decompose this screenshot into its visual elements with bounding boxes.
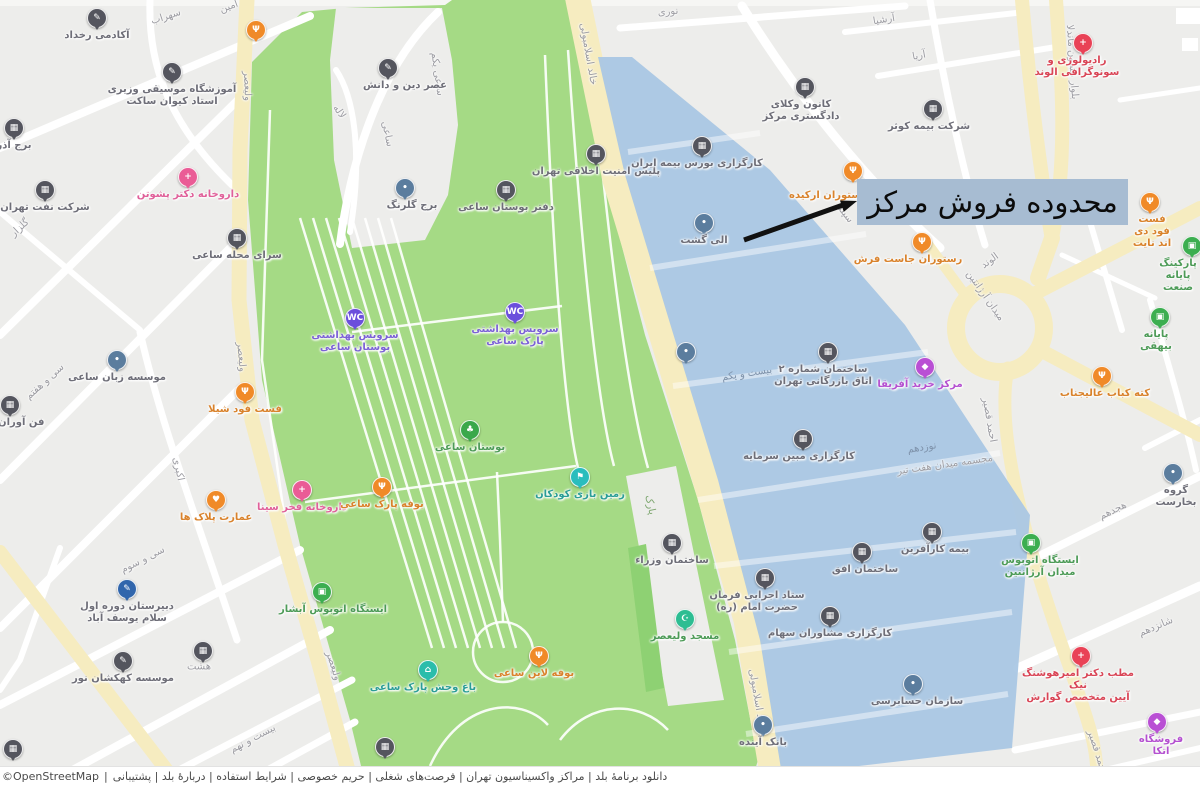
building-icon: ▦ (929, 105, 938, 114)
building-icon: ▦ (824, 348, 833, 357)
bus-icon: ▣ (318, 588, 327, 597)
map-pin-just-restaurant[interactable]: Ψ (912, 232, 932, 252)
building-icon: ▦ (502, 186, 511, 195)
street-label: نوری (657, 6, 678, 19)
poi-label-fakhre-sina-pharmacy: داروخانه فخر سینا (257, 502, 347, 514)
medical-icon: + (1077, 652, 1085, 661)
heart-icon: ♥ (212, 496, 220, 505)
poi-label-salam-school: دبیرستان دوره اول سلام یوسف آباد (80, 601, 174, 625)
generic-icon: • (910, 680, 916, 689)
map-pin-azar-tower[interactable]: ▦ (4, 118, 24, 138)
bus-icon: ▣ (1156, 313, 1165, 322)
map-pin-salam-school[interactable]: ✎ (117, 579, 137, 599)
map-pin-bucharest-group[interactable]: • (1163, 463, 1183, 483)
building-icon: ▦ (9, 745, 18, 754)
school-icon: ✎ (168, 68, 176, 77)
poi-label-saee-park-office: دفتر بوستان ساعی (458, 202, 554, 214)
map-pin-saee-language-institute[interactable]: • (107, 350, 127, 370)
generic-icon: • (1170, 469, 1176, 478)
bus-icon: ▣ (1027, 539, 1036, 548)
map-pin-park-buffet[interactable]: Ψ (372, 477, 392, 497)
map-pin-fakhre-sina-pharmacy[interactable]: + (292, 480, 312, 500)
poi-label-africa-mall: مرکز خرید آفریقا (877, 379, 962, 391)
poi-label-fanavaran: فن آوران مهر (0, 417, 44, 429)
map-pin-doctor-office[interactable]: + (1071, 646, 1091, 666)
poi-label-chamber-of-commerce: ساختمان شماره ۲ اتاق بازرگانی تهران (774, 364, 872, 388)
map-pin-beyhaghi-terminal[interactable]: ▣ (1150, 307, 1170, 327)
street-label: آریا (911, 49, 926, 62)
building-icon: ▦ (801, 83, 810, 92)
poi-label-oil-company: شرکت نفت تهران (0, 202, 90, 214)
food-icon: Ψ (241, 388, 249, 397)
map-pin-pashootan-pharmacy[interactable]: + (178, 167, 198, 187)
poi-label-shila-fastfood: فست فود شیلا (208, 404, 282, 416)
poi-label-just-restaurant: رستوران جاست فرش (854, 254, 963, 266)
generic-icon: • (114, 356, 120, 365)
map-pin-bar-association[interactable]: ▦ (795, 77, 815, 97)
building-icon: ▦ (381, 743, 390, 752)
generic-icon: • (683, 348, 689, 357)
generic-icon: • (402, 184, 408, 193)
poi-label-doctor-office: مطب دکتر امیرهوشنگ نیک آیین متخصص گوارش (1017, 668, 1139, 704)
food-icon: Ψ (918, 238, 926, 247)
footer-links[interactable]: دانلود برنامهٔ بلد | مراکز واکسیناسیون ت… (113, 770, 668, 783)
poi-label-alvand-radiology: رادیولوژی و سونوگرافی الوند (1035, 55, 1120, 79)
map-pin-shila-fastfood[interactable]: Ψ (235, 382, 255, 402)
building-icon: ▦ (826, 612, 835, 621)
map-pin-alijanab-kabab[interactable]: Ψ (1092, 366, 1112, 386)
food-icon: Ψ (1098, 372, 1106, 381)
building-icon: ▦ (761, 574, 770, 583)
map-pin-building-pin-corner[interactable]: ▦ (3, 739, 23, 759)
map-pin-ayandeh-bank[interactable]: • (753, 715, 773, 735)
map-pin-saee-park-office[interactable]: ▦ (496, 180, 516, 200)
poi-label-bucharest-group: گروه بخارست (1156, 485, 1197, 509)
map-pin-alvand-radiology[interactable]: + (1073, 33, 1093, 53)
street-label: ولیعصر (241, 71, 253, 101)
building-icon: ▦ (799, 435, 808, 444)
poi-label-etka-store: فروشگاه اتکا (1139, 734, 1183, 758)
poi-label-insurance-brokerage: کارگزاری بورس بیمه ایران (631, 158, 763, 170)
map-pin-saee-neighborhood-house[interactable]: ▦ (227, 228, 247, 248)
map-pin-etka-store[interactable]: ◆ (1147, 712, 1167, 732)
map-pin-mobin-brokerage[interactable]: ▦ (793, 429, 813, 449)
map-pin-eligasht[interactable]: • (694, 213, 714, 233)
map-pin-abshar-bus-stop[interactable]: ▣ (312, 582, 332, 602)
school-icon: ✎ (93, 14, 101, 23)
poi-label-azar-tower: برج آذر (0, 140, 31, 152)
building-icon: ▦ (858, 548, 867, 557)
poi-label-pelak-mansion: عمارت پلاک ها (180, 512, 252, 524)
medical-icon: + (1079, 39, 1087, 48)
map-pin-academy-rokhdad[interactable]: ✎ (87, 8, 107, 28)
footer-separator: | (104, 770, 108, 783)
map-pin-karafarin-insurance[interactable]: ▦ (922, 522, 942, 542)
map-pin-pelak-mansion[interactable]: ♥ (206, 490, 226, 510)
poi-label-eligasht: الی گشت (680, 235, 727, 247)
map-pin-orchid-restaurant[interactable]: Ψ (843, 161, 863, 181)
map-pin-argentine-bus-stop[interactable]: ▣ (1021, 533, 1041, 553)
map-pin-ofogh-building[interactable]: ▦ (852, 542, 872, 562)
poi-label-ofogh-building: ساختمان افق (832, 564, 898, 576)
map-pin-africa-mall[interactable]: ◆ (915, 357, 935, 377)
poi-label-moshaveran-brokerage: کارگزاری مشاوران سهام (768, 628, 892, 640)
poi-label-line-buffet: بوفه لاین ساعی (494, 668, 574, 680)
pharmacy-icon: + (298, 486, 306, 495)
generic-icon: • (760, 721, 766, 730)
map-pin-oil-company[interactable]: ▦ (35, 180, 55, 200)
poi-label-bar-association: کانون وکلای دادگستری مرکز (762, 99, 839, 123)
poi-label-park-buffet: بوفه پارک ساعی (340, 499, 424, 511)
map-pin-moshaveran-brokerage[interactable]: ▦ (820, 606, 840, 626)
poi-label-golrang-tower: برج گلرنگ (387, 200, 438, 212)
poi-label-argentine-bus-stop: ایستگاه اتوبوس میدان آرژانتین (1001, 555, 1079, 579)
map-pin-line-buffet[interactable]: Ψ (529, 646, 549, 666)
attribution-bar: ©OpenStreetMap | دانلود برنامهٔ بلد | مر… (0, 766, 1200, 785)
building-icon: ▦ (668, 539, 677, 548)
map-pin-kahkashan-institute[interactable]: ✎ (113, 651, 133, 671)
map-pin-generic-pin[interactable]: • (676, 342, 696, 362)
map-pin-day-night-fastfood[interactable]: Ψ (1140, 192, 1160, 212)
poi-label-ayandeh-bank: بانک آینده (739, 737, 787, 749)
poi-label-vaziri-music-school: آموزشگاه موسیقی وزیری استاد کیوان ساکت (108, 84, 237, 108)
poi-label-asre-din-danesh-school: عصر دین و دانش (363, 80, 447, 92)
building-icon: ▦ (41, 186, 50, 195)
mosque-icon: ☪ (681, 615, 689, 624)
map-pin-golrang-tower[interactable]: • (395, 178, 415, 198)
poi-label-children-playground: زمین بازی کودکان (535, 489, 625, 501)
map-pin-moral-security-police[interactable]: ▦ (586, 144, 606, 164)
generic-icon: • (701, 219, 707, 228)
food-icon: Ψ (378, 483, 386, 492)
poi-label-saee-neighborhood-house: سرای محله ساعی (192, 250, 282, 262)
pharmacy-icon: + (184, 173, 192, 182)
map-pin-saee-garden[interactable]: ♣ (460, 420, 480, 440)
food-icon: Ψ (535, 652, 543, 661)
school-icon: ✎ (384, 64, 392, 73)
wc-icon: WC (347, 314, 364, 323)
map-pin-restroom-east[interactable]: WC (505, 302, 525, 322)
poi-label-orchid-restaurant: رستوران ارکیده (789, 190, 867, 202)
poi-label-saee-zoo: باغ وحش پارک ساعی (370, 682, 476, 694)
osm-attribution[interactable]: ©OpenStreetMap (2, 770, 99, 783)
map-pin-restaurant-pin[interactable]: Ψ (246, 20, 266, 40)
blue-icon: ✎ (123, 585, 131, 594)
sales-area-label: محدوده فروش مرکز (857, 179, 1128, 225)
map-pin-vozara-building[interactable]: ▦ (662, 533, 682, 553)
poi-label-beyhaghi-terminal: پایانه بیهقی (1134, 329, 1178, 353)
tree-icon: ♣ (466, 426, 474, 435)
building-icon: ▦ (233, 234, 242, 243)
food-icon: Ψ (1146, 198, 1154, 207)
map-pin-building-pin-hasht[interactable]: ▦ (193, 641, 213, 661)
poi-label-sanat-terminal: پارکینگ پایانه صنعت (1159, 258, 1196, 294)
map-pin-building-pin-park[interactable]: ▦ (375, 737, 395, 757)
poi-label-saee-language-institute: موسسه زبان ساعی (68, 372, 166, 384)
poi-label-audit-organization: سازمان حسابرسی (871, 696, 963, 708)
building-icon: ▦ (6, 401, 15, 410)
building-icon: ▦ (199, 647, 208, 656)
map-pin-restroom-west[interactable]: WC (345, 308, 365, 328)
poi-label-alijanab-kabab: کته کباب عالیجناب (1060, 388, 1150, 400)
map-pin-vaziri-music-school[interactable]: ✎ (162, 62, 182, 82)
building-icon: ▦ (928, 528, 937, 537)
poi-label-abshar-bus-stop: ایستگاه اتوبوس آبشار (279, 604, 387, 616)
map-pin-kosar-insurance[interactable]: ▦ (923, 99, 943, 119)
shopping-icon: ◆ (922, 363, 929, 372)
poi-label-kosar-insurance: شرکت بیمه کوثر (888, 121, 970, 133)
teal-icon: ⚑ (576, 473, 584, 482)
poi-label-restroom-west: سرویس بهداشتی بوستان ساعی (311, 330, 398, 354)
map-pin-children-playground[interactable]: ⚑ (570, 467, 590, 487)
poi-label-day-night-fastfood: فست فود دی اند نایت (1128, 214, 1176, 250)
map-pin-saee-zoo[interactable]: ⌂ (418, 660, 438, 680)
poi-label-mobin-brokerage: کارگزاری مبین سرمایه (743, 451, 855, 463)
poi-label-pashootan-pharmacy: داروخانه دکتر پشوتن (137, 189, 239, 201)
shopping-icon: ◆ (1154, 718, 1161, 727)
poi-label-valiasr-mosque: مسجد ولیعصر (651, 631, 720, 643)
map-pin-chamber-of-commerce[interactable]: ▦ (818, 342, 838, 362)
bus-icon: ▣ (1188, 242, 1197, 251)
poi-label-restroom-east: سرویس بهداشتی پارک ساعی (471, 324, 558, 348)
map-pin-audit-organization[interactable]: • (903, 674, 923, 694)
map-pin-insurance-brokerage[interactable]: ▦ (692, 136, 712, 156)
map-pin-sanat-terminal[interactable]: ▣ (1182, 236, 1200, 256)
map-pin-valiasr-mosque[interactable]: ☪ (675, 609, 695, 629)
building-icon: ▦ (698, 142, 707, 151)
food-icon: Ψ (252, 26, 260, 35)
school-icon: ✎ (119, 657, 127, 666)
wc-icon: WC (507, 308, 524, 317)
map-pin-setad-ejraei[interactable]: ▦ (755, 568, 775, 588)
zoo-icon: ⌂ (425, 666, 431, 675)
building-icon: ▦ (592, 150, 601, 159)
poi-label-vozara-building: ساختمان وزراء (635, 555, 709, 567)
poi-label-karafarin-insurance: بیمه کارآفرین (901, 544, 969, 556)
poi-label-saee-garden: بوستان ساعی (435, 442, 505, 454)
poi-label-setad-ejraei: ستاد اجرایی فرمان حضرت امام (ره) (709, 590, 804, 614)
building-icon: ▦ (10, 124, 19, 133)
map-pin-fanavaran[interactable]: ▦ (0, 395, 20, 415)
poi-label-academy-rokhdad: آکادمی رخداد (64, 30, 129, 42)
poi-label-kahkashan-institute: موسسه کهکشان نور (72, 673, 174, 685)
map-pin-asre-din-danesh-school[interactable]: ✎ (378, 58, 398, 78)
food-icon: Ψ (849, 167, 857, 176)
map-canvas[interactable]: ✎آکادمی رخداد✎آموزشگاه موسیقی وزیری استا… (0, 0, 1200, 785)
